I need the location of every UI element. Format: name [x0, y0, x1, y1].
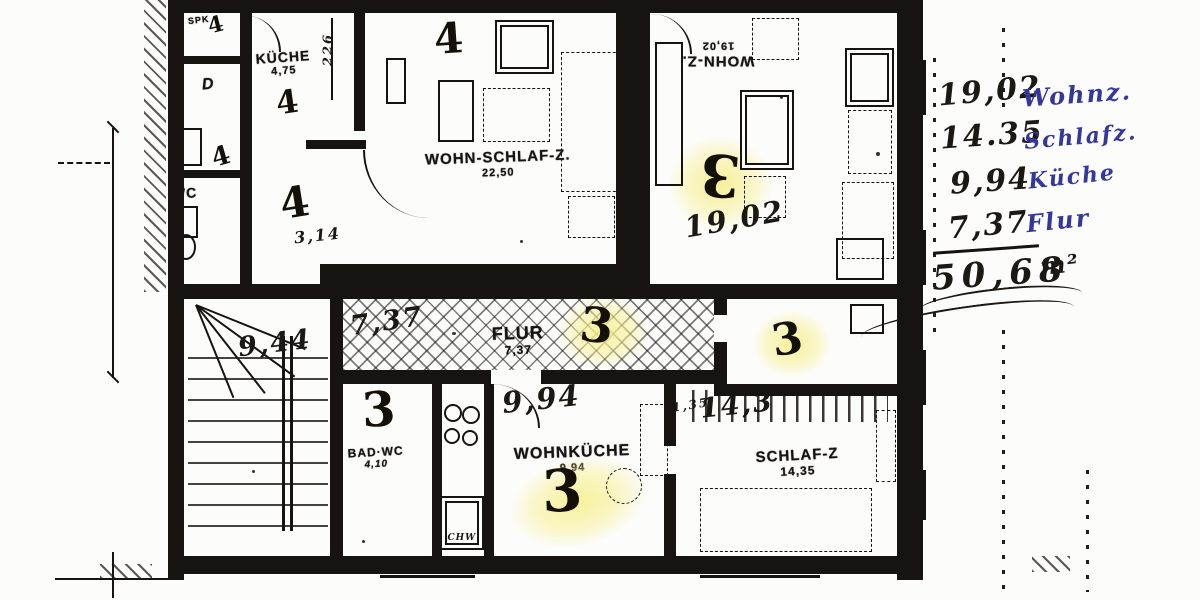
furniture: [462, 406, 480, 424]
scan-speck: [362, 540, 365, 543]
apartment-number-4: 4: [209, 142, 234, 172]
furniture: [568, 196, 615, 238]
wall-segment: [320, 264, 650, 286]
note-label-kueche: Küche: [1027, 159, 1117, 194]
apartment-number-4: 4: [274, 85, 301, 120]
furniture: [836, 238, 884, 280]
furniture: [438, 80, 474, 142]
furniture: [172, 128, 202, 166]
furniture: [495, 20, 554, 74]
note-label-flur: Flur: [1025, 203, 1092, 239]
furniture: [848, 110, 892, 174]
exterior-wall-hatch: [144, 0, 166, 292]
furniture: [440, 496, 484, 550]
room-label-kueche: KÜCHE 4,75: [255, 48, 312, 79]
scan-speck: [452, 332, 456, 335]
apartment-number-3: 3: [769, 316, 806, 364]
apartment-number-4: 4: [206, 12, 226, 37]
stray-marks: [1032, 556, 1070, 572]
wohnz-name: WOHN-Z.: [682, 53, 755, 70]
furniture: [561, 52, 621, 192]
furniture: [850, 304, 884, 334]
wall-segment: [168, 556, 915, 574]
wall-segment: [714, 342, 727, 386]
apartment-number-3: 3: [361, 385, 397, 435]
wall-segment: [616, 0, 650, 286]
flur-name: FLUR: [491, 322, 544, 344]
wall-segment: [343, 370, 491, 384]
apartment-number-4: 4: [433, 17, 465, 61]
note-total-unit: m²: [1039, 248, 1082, 281]
ground-hatch: [100, 564, 152, 578]
wall-segment: [168, 0, 915, 13]
apartment-number-4: 4: [277, 180, 312, 226]
stair-treads: [188, 338, 328, 538]
furniture: [655, 42, 683, 186]
note-label-wohnz: Wohnz.: [1021, 76, 1133, 113]
room-label-schlafz: SCHLAF-Z 14,35: [755, 446, 839, 480]
room-label-flur: FLUR 7,37: [491, 323, 544, 358]
wall-segment: [306, 140, 366, 149]
apartment-number-3: 3: [578, 300, 616, 351]
apartment-number-3: 3: [698, 145, 742, 206]
flur-area: 7,37: [492, 343, 544, 358]
furniture: [444, 404, 462, 422]
schlafz-name: SCHLAF-Z: [755, 445, 839, 466]
note-value-flur: 7,37: [947, 205, 1031, 247]
wall-segment: [330, 299, 343, 558]
furniture: [606, 468, 642, 504]
furniture: [386, 58, 406, 104]
room-label-dusche: D: [201, 75, 215, 94]
furniture: [876, 410, 896, 482]
furniture: [176, 234, 196, 260]
wall-segment: [168, 284, 915, 299]
wall-segment: [240, 13, 252, 286]
furniture: [740, 90, 794, 170]
dimension-226: 226: [321, 33, 336, 66]
note-value-kueche: 9,94: [949, 161, 1032, 202]
furniture: [744, 176, 786, 218]
floorplan-scan: 9,44 SPK 4 D 4 WC KÜCHE 4,75 4 226 4 3,1…: [0, 0, 1200, 600]
fold-line: [1086, 470, 1089, 592]
room-label-wohnschlafz: WOHN-SCHLAF-Z. 22,50: [418, 147, 579, 181]
wall-segment: [484, 384, 494, 558]
wall-segment: [541, 370, 716, 384]
wall-segment: [354, 13, 365, 131]
furniture: [700, 488, 872, 552]
furniture: [845, 48, 894, 107]
dimension-line: [112, 128, 114, 378]
wall-segment: [168, 170, 244, 178]
scan-speck: [520, 240, 523, 243]
stair-stringer: [290, 336, 293, 531]
wall-segment: [664, 474, 676, 558]
furniture: [444, 428, 460, 444]
stair-stringer: [282, 336, 285, 531]
wall-segment: [168, 56, 244, 64]
door-arc: [363, 150, 429, 218]
apartment-number-3: 3: [541, 461, 583, 520]
ground-line: [55, 578, 168, 580]
fold-line: [1002, 330, 1005, 592]
wall-segment: [714, 299, 727, 315]
dimension-dash: [58, 162, 110, 164]
door-arc: [247, 16, 281, 52]
scan-speck: [252, 470, 255, 473]
furniture: [752, 18, 799, 60]
badwc-name: BAD·WC: [347, 444, 404, 461]
wall-segment: [714, 384, 917, 396]
furniture: [640, 404, 668, 476]
furniture: [462, 430, 478, 446]
hall-area-note: 3,14: [293, 224, 342, 248]
furniture: [483, 88, 550, 142]
room-label-badwc: BAD·WC 4,10: [347, 445, 404, 472]
